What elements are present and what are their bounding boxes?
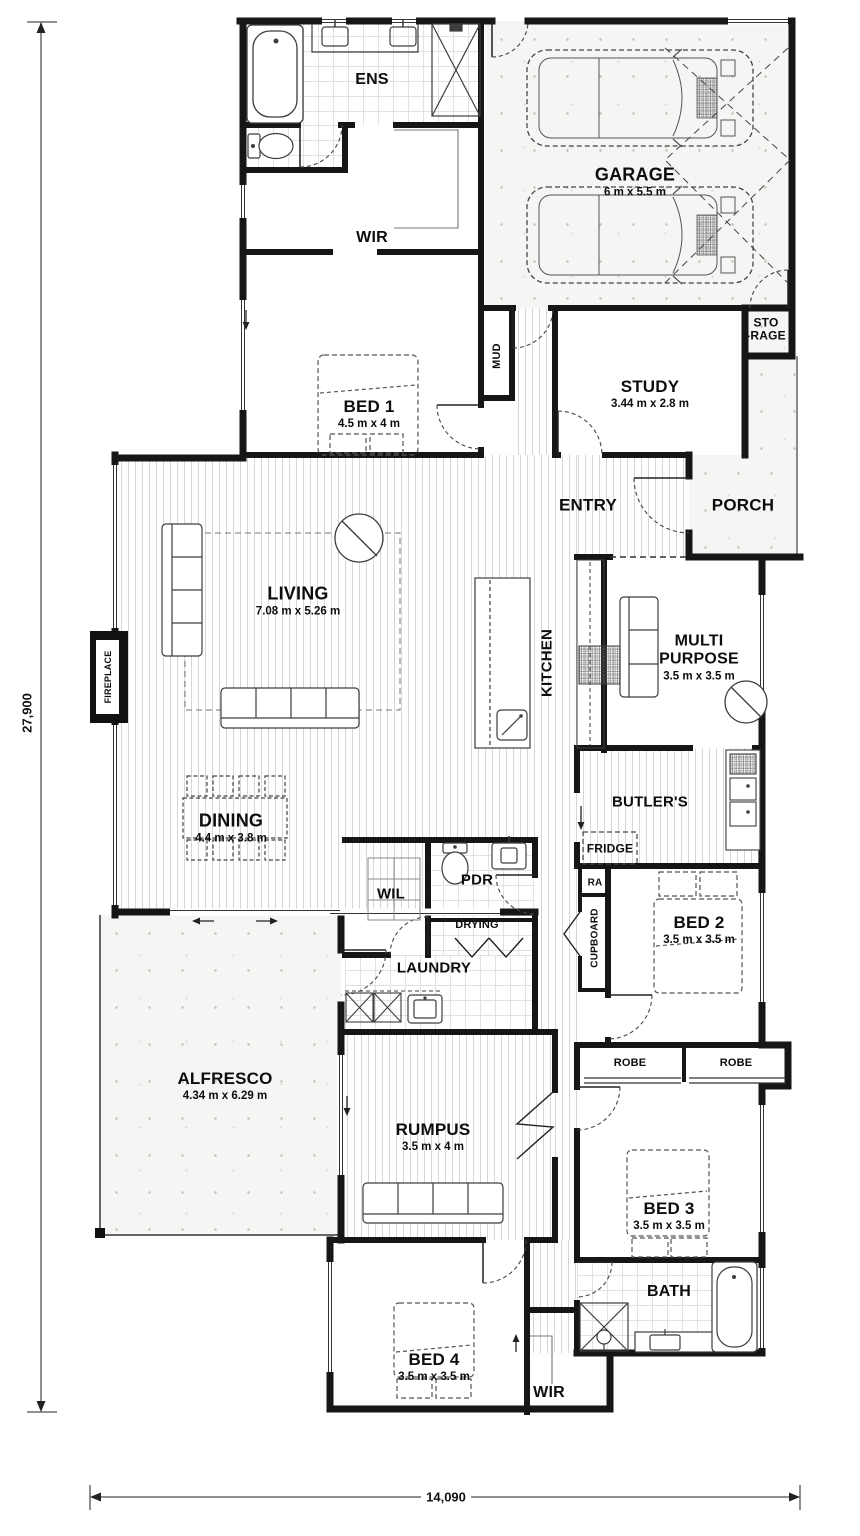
room-label-pdr: PDR (461, 873, 493, 890)
room-label-multipurpose: MULTI PURPOSE3.5 m x 3.5 m (659, 633, 739, 684)
room-label-mud: MUD (491, 343, 503, 369)
room-label-kitchen: KITCHEN (540, 629, 557, 697)
room-label-study: STUDY3.44 m x 2.8 m (611, 377, 689, 411)
robe-sliding-doors (584, 1078, 786, 1083)
room-label-cupboard: CUPBOARD (589, 908, 600, 967)
room-label-drying: DRYING (455, 919, 499, 931)
rear-hall-floor (527, 1240, 577, 1353)
room-label-bed2: BED 23.5 m x 3.5 m (663, 913, 735, 947)
room-label-entry: ENTRY (559, 495, 617, 514)
room-label-fireplace: FIREPLACE (103, 651, 113, 704)
sofa-icon-multi (620, 597, 658, 697)
room-label-porch: PORCH (712, 495, 774, 514)
room-label-garage: GARAGE6 m x 5.5 m (595, 164, 675, 199)
mud-hall-floor (512, 308, 555, 455)
room-label-robe1: ROBE (614, 1057, 647, 1069)
bath-floor (577, 1260, 762, 1353)
room-label-wir-minor: WIR (533, 1384, 565, 1402)
room-label-bed4: BED 43.5 m x 3.5 m (398, 1350, 470, 1384)
floor-plan: ENS WIR GARAGE6 m x 5.5 m BED 14.5 m x 4… (0, 0, 860, 1536)
wardrobe-shelf (394, 130, 458, 228)
room-label-ra: RA (588, 877, 603, 888)
cooktop-oven-icon (579, 646, 627, 684)
room-label-ens: ENS (355, 71, 389, 89)
room-label-wir-master: WIR (356, 229, 388, 247)
room-label-dining: DINING4.4 m x 3.8 m (195, 810, 267, 845)
room-label-rumpus: RUMPUS3.5 m x 4 m (396, 1120, 471, 1154)
room-label-storage: STO -RAGE (746, 317, 786, 344)
room-label-bed1: BED 14.5 m x 4 m (338, 397, 400, 431)
room-label-butlers: BUTLER'S (612, 795, 688, 812)
room-label-robe2: ROBE (720, 1057, 753, 1069)
room-label-wil: WIL (377, 887, 405, 904)
room-label-fridge: FRIDGE (587, 842, 634, 855)
kitchen-cabinet-run (577, 560, 604, 748)
room-label-bath: BATH (647, 1283, 691, 1301)
dimension-overall-width: 14,090 (421, 1490, 471, 1505)
dimension-overall-depth: 27,900 (20, 688, 35, 738)
room-label-alfresco: ALFRESCO4.34 m x 6.29 m (177, 1069, 272, 1103)
room-label-living: LIVING7.08 m x 5.26 m (256, 583, 340, 618)
armchair-icon-multi (725, 681, 767, 723)
wc-floor (243, 125, 345, 170)
room-label-bed3: BED 33.5 m x 3.5 m (633, 1199, 705, 1233)
room-label-laundry: LAUNDRY (397, 961, 471, 978)
